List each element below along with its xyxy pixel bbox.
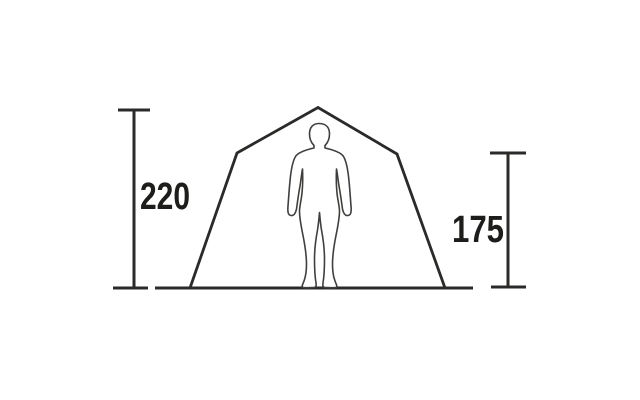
height-dimension-left: 220: [113, 110, 190, 288]
left-dimension-label: 220: [140, 176, 190, 218]
tent-dimension-diagram: 220 175: [0, 0, 640, 400]
right-dimension-label: 175: [452, 209, 504, 251]
human-figure-icon: [288, 124, 351, 288]
diagram-canvas: 220 175: [0, 0, 640, 400]
height-dimension-right: 175: [452, 153, 526, 287]
